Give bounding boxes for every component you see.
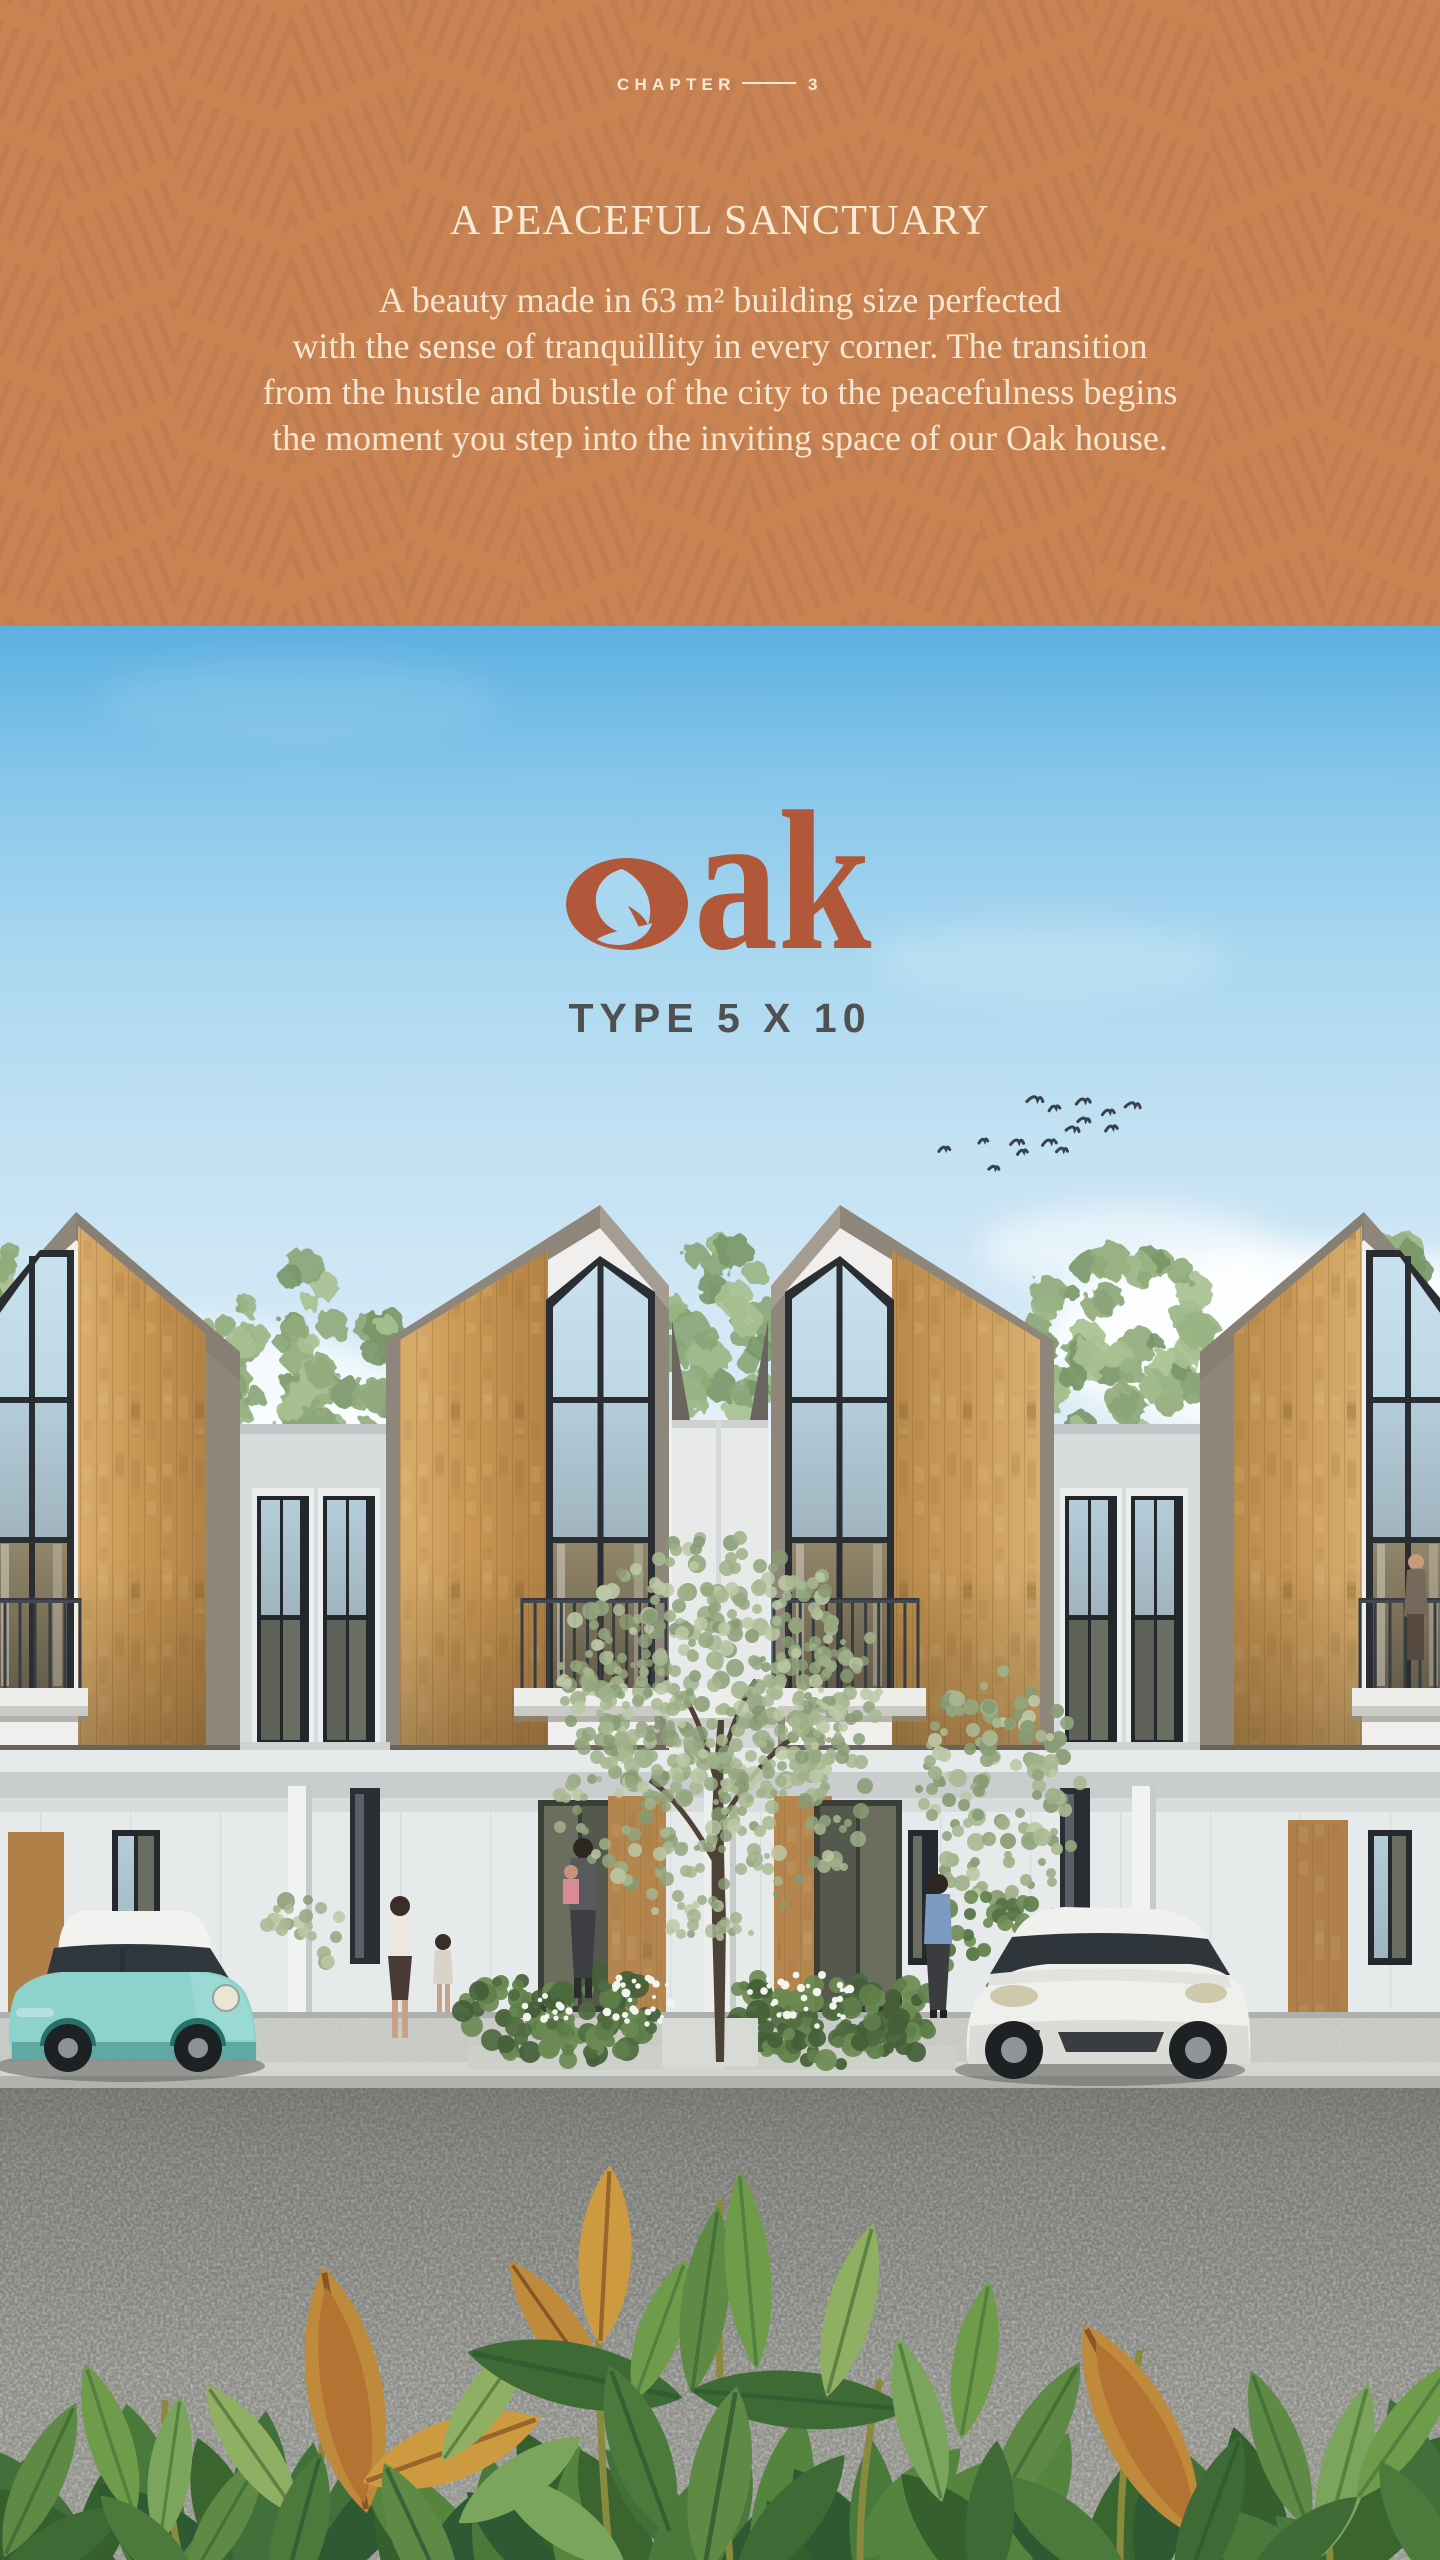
svg-text:A PEACEFUL SANCTUARY: A PEACEFUL SANCTUARY — [450, 198, 990, 244]
svg-text:ak: ak — [694, 769, 872, 991]
svg-text:the moment you step into the i: the moment you step into the inviting sp… — [272, 418, 1168, 458]
svg-text:A beauty made in 63 m² buildin: A beauty made in 63 m² building size per… — [379, 280, 1062, 320]
svg-text:with the sense of tranquillity: with the sense of tranquillity in every … — [292, 326, 1147, 366]
svg-text:CHAPTER: CHAPTER — [617, 75, 736, 94]
svg-text:3: 3 — [808, 75, 817, 94]
svg-text:from the hustle and bustle of: from the hustle and bustle of the city t… — [263, 372, 1178, 412]
svg-text:TYPE 5 X 10: TYPE 5 X 10 — [568, 995, 871, 1041]
